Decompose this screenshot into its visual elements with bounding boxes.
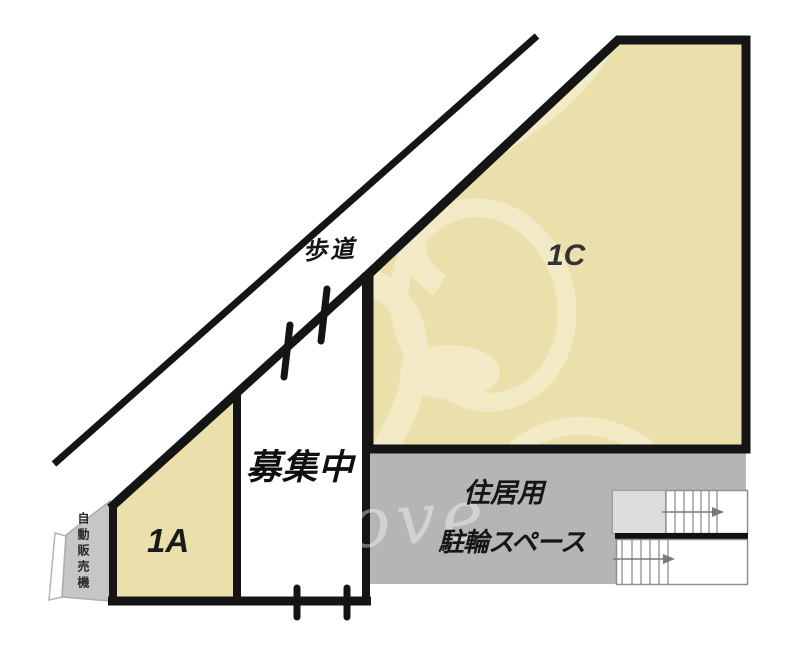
bicycle-area-label-line1: 住居用 bbox=[463, 480, 544, 507]
bicycle-area-label-line2: 駐輪スペース bbox=[438, 529, 585, 555]
unit-1c-label: 1C bbox=[547, 241, 585, 271]
stairs-lower-flight bbox=[617, 540, 748, 585]
stairs-landing bbox=[613, 491, 666, 534]
staircase bbox=[613, 491, 749, 585]
vacancy-label: 募集中 bbox=[246, 450, 354, 485]
stairs-mid-wall bbox=[615, 533, 748, 539]
unit-1a-area bbox=[113, 394, 237, 601]
sidewalk-label: 歩道 bbox=[302, 238, 357, 265]
site-plan: ove 歩道 1C 1A 募集中 住居用 駐輪スペース 自動販売機 bbox=[0, 0, 800, 667]
site-plan-drawing bbox=[0, 0, 800, 667]
unit-1a-label: 1A bbox=[147, 524, 189, 557]
vending-machine-label: 自動販売機 bbox=[77, 512, 89, 604]
